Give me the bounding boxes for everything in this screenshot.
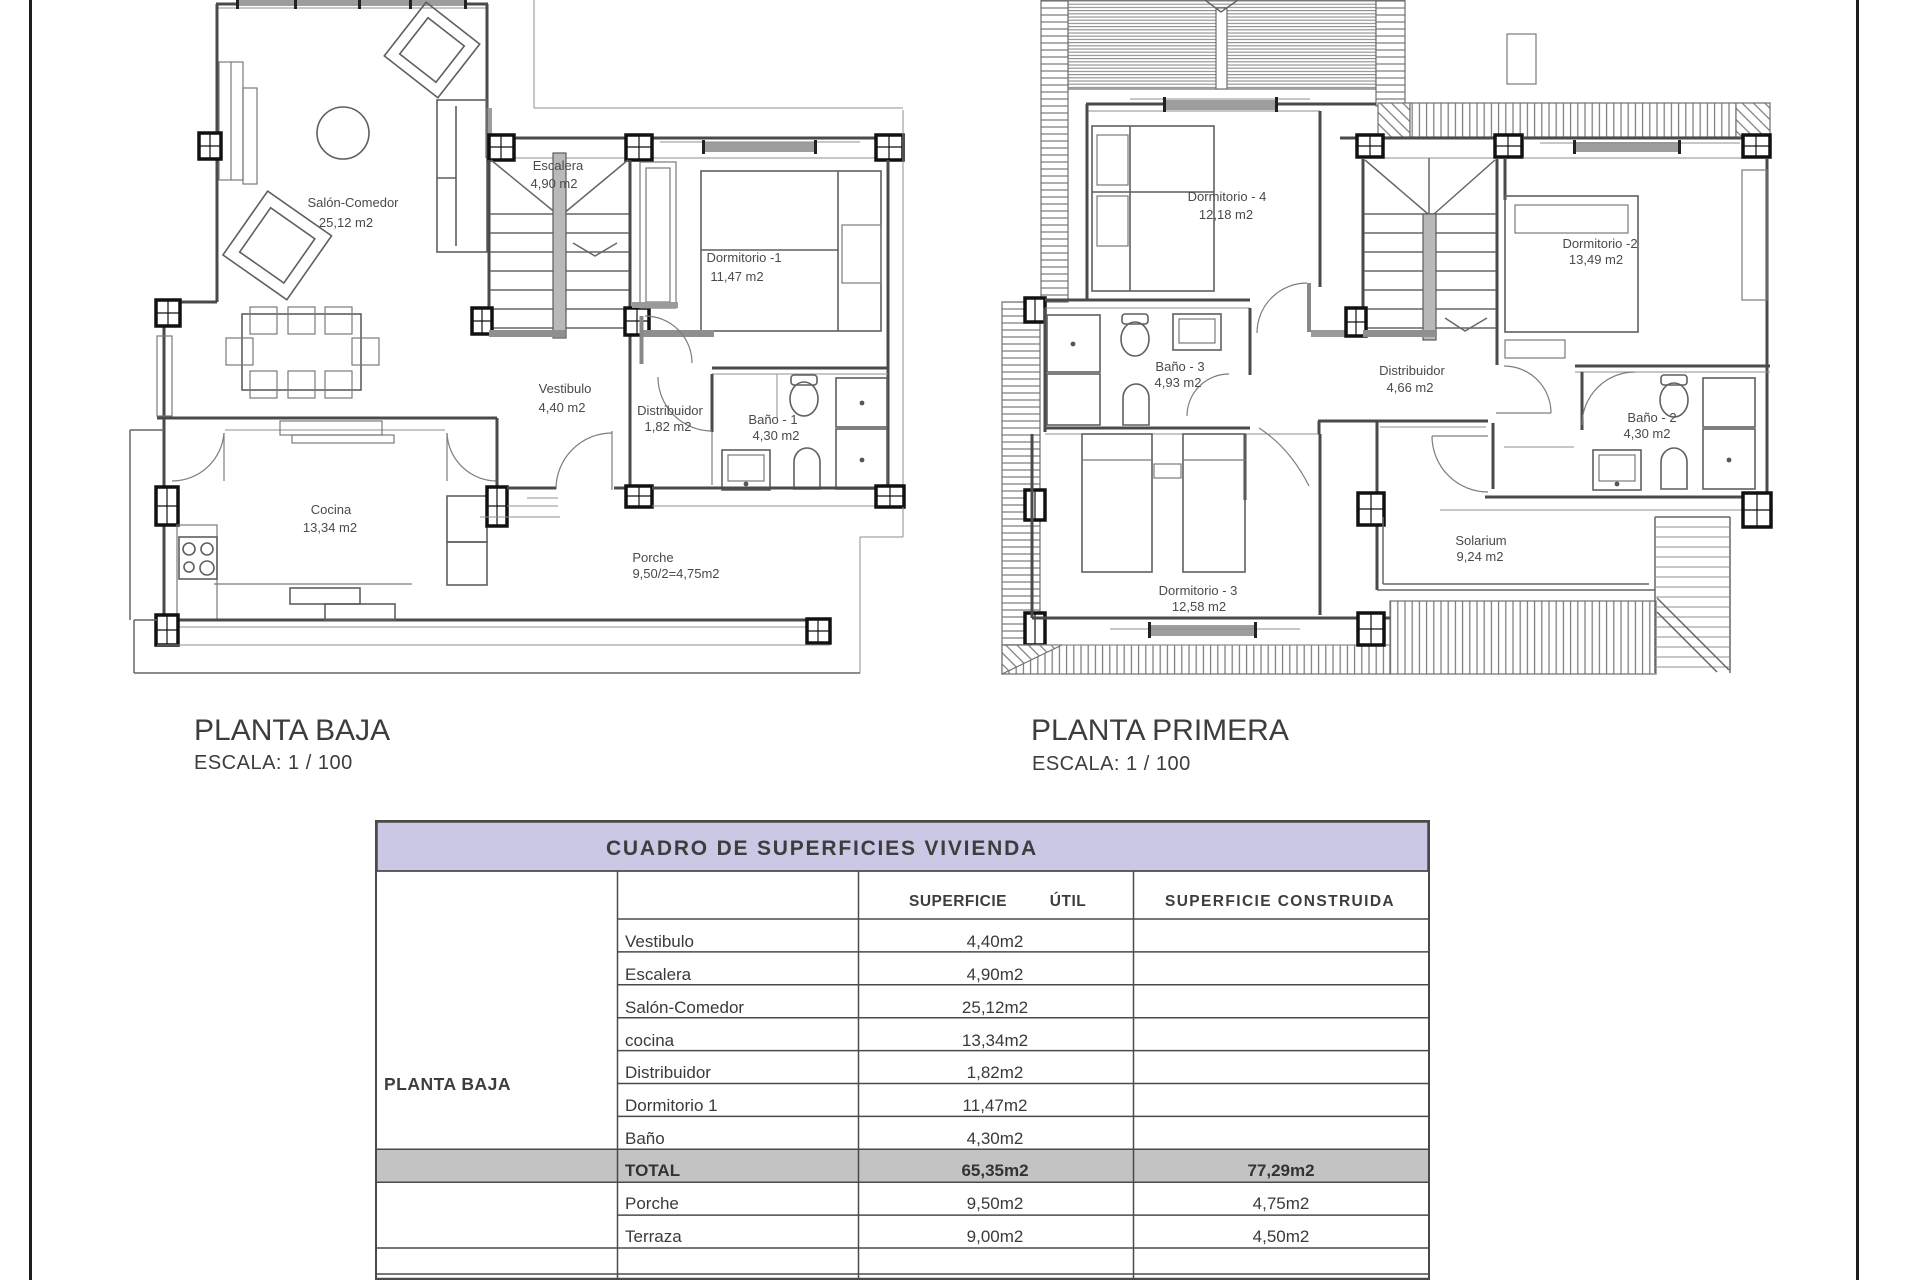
svg-text:Porche: Porche	[632, 550, 673, 565]
svg-text:PLANTA PRIMERA: PLANTA PRIMERA	[1031, 714, 1289, 747]
svg-text:1,82 m2: 1,82 m2	[645, 419, 692, 434]
svg-text:Baño - 2: Baño - 2	[1627, 410, 1676, 425]
svg-text:4,90 m2: 4,90 m2	[531, 176, 578, 191]
svg-text:CUADRO DE SUPERFICIES VIVIEND: CUADRO DE SUPERFICIES VIVIENDA	[606, 837, 1038, 860]
svg-text:77,29m2: 77,29m2	[1247, 1161, 1314, 1180]
svg-text:4,30 m2: 4,30 m2	[1624, 426, 1671, 441]
svg-text:Vestibulo: Vestibulo	[625, 932, 694, 951]
svg-text:4,30 m2: 4,30 m2	[753, 428, 800, 443]
svg-text:Solarium: Solarium	[1455, 533, 1506, 548]
svg-text:SUPERFICIE CONSTRUIDA: SUPERFICIE CONSTRUIDA	[1165, 893, 1395, 910]
svg-text:Distribuidor: Distribuidor	[1379, 363, 1445, 378]
svg-text:1,82m2: 1,82m2	[967, 1063, 1024, 1082]
svg-text:Dormitorio 1: Dormitorio 1	[625, 1096, 718, 1115]
svg-text:4,75m2: 4,75m2	[1253, 1194, 1310, 1213]
svg-text:9,50/2=4,75m2: 9,50/2=4,75m2	[632, 566, 719, 581]
svg-text:Escalera: Escalera	[625, 965, 692, 984]
svg-text:4,30m2: 4,30m2	[967, 1129, 1024, 1148]
svg-text:4,50m2: 4,50m2	[1253, 1227, 1310, 1246]
svg-text:11,47 m2: 11,47 m2	[710, 269, 763, 284]
svg-text:Dormitorio -1: Dormitorio -1	[706, 250, 781, 265]
svg-text:Baño: Baño	[625, 1129, 665, 1148]
svg-text:25,12m2: 25,12m2	[962, 998, 1028, 1017]
svg-text:11,47m2: 11,47m2	[963, 1096, 1028, 1115]
svg-text:Escalera: Escalera	[533, 158, 584, 173]
svg-text:65,35m2: 65,35m2	[961, 1161, 1028, 1180]
svg-text:ESCALA: 1 / 100: ESCALA: 1 / 100	[1032, 753, 1191, 775]
svg-text:Vestibulo: Vestibulo	[539, 381, 592, 396]
svg-text:Salón-Comedor: Salón-Comedor	[625, 998, 744, 1017]
svg-text:Porche: Porche	[625, 1194, 679, 1213]
svg-text:4,90m2: 4,90m2	[967, 965, 1024, 984]
svg-text:Cocina: Cocina	[311, 502, 352, 517]
svg-text:ÚTIL: ÚTIL	[1050, 892, 1086, 910]
svg-text:TOTAL: TOTAL	[625, 1161, 680, 1180]
svg-text:Distribuidor: Distribuidor	[625, 1063, 711, 1082]
svg-text:Baño - 3: Baño - 3	[1155, 359, 1204, 374]
svg-text:4,66 m2: 4,66 m2	[1387, 380, 1434, 395]
svg-text:ESCALA: 1 / 100: ESCALA: 1 / 100	[194, 752, 353, 774]
svg-text:4,93 m2: 4,93 m2	[1155, 375, 1202, 390]
svg-text:12,58 m2: 12,58 m2	[1172, 599, 1226, 614]
svg-text:9,50m2: 9,50m2	[967, 1194, 1024, 1213]
svg-text:25,12 m2: 25,12 m2	[319, 215, 373, 230]
svg-text:cocina: cocina	[625, 1031, 675, 1050]
svg-text:13,34 m2: 13,34 m2	[303, 520, 357, 535]
svg-text:SUPERFICIE: SUPERFICIE	[909, 893, 1007, 910]
svg-text:9,24 m2: 9,24 m2	[1457, 549, 1504, 564]
svg-text:13,34m2: 13,34m2	[962, 1031, 1028, 1050]
svg-text:Terraza: Terraza	[625, 1227, 682, 1246]
svg-text:PLANTA BAJA: PLANTA BAJA	[384, 1074, 511, 1094]
svg-text:Dormitorio -2: Dormitorio -2	[1562, 236, 1637, 251]
svg-text:4,40m2: 4,40m2	[967, 932, 1024, 951]
svg-text:Dormitorio - 4: Dormitorio - 4	[1188, 189, 1267, 204]
svg-text:PLANTA BAJA: PLANTA BAJA	[194, 714, 390, 747]
svg-text:13,49 m2: 13,49 m2	[1569, 252, 1623, 267]
svg-text:Dormitorio - 3: Dormitorio - 3	[1159, 583, 1238, 598]
svg-text:4,40 m2: 4,40 m2	[539, 400, 586, 415]
svg-text:Distribuidor: Distribuidor	[637, 403, 703, 418]
svg-text:9,00m2: 9,00m2	[967, 1227, 1024, 1246]
svg-text:Baño - 1: Baño - 1	[748, 412, 797, 427]
svg-text:12,18 m2: 12,18 m2	[1199, 207, 1253, 222]
svg-text:Salón-Comedor: Salón-Comedor	[307, 195, 399, 210]
